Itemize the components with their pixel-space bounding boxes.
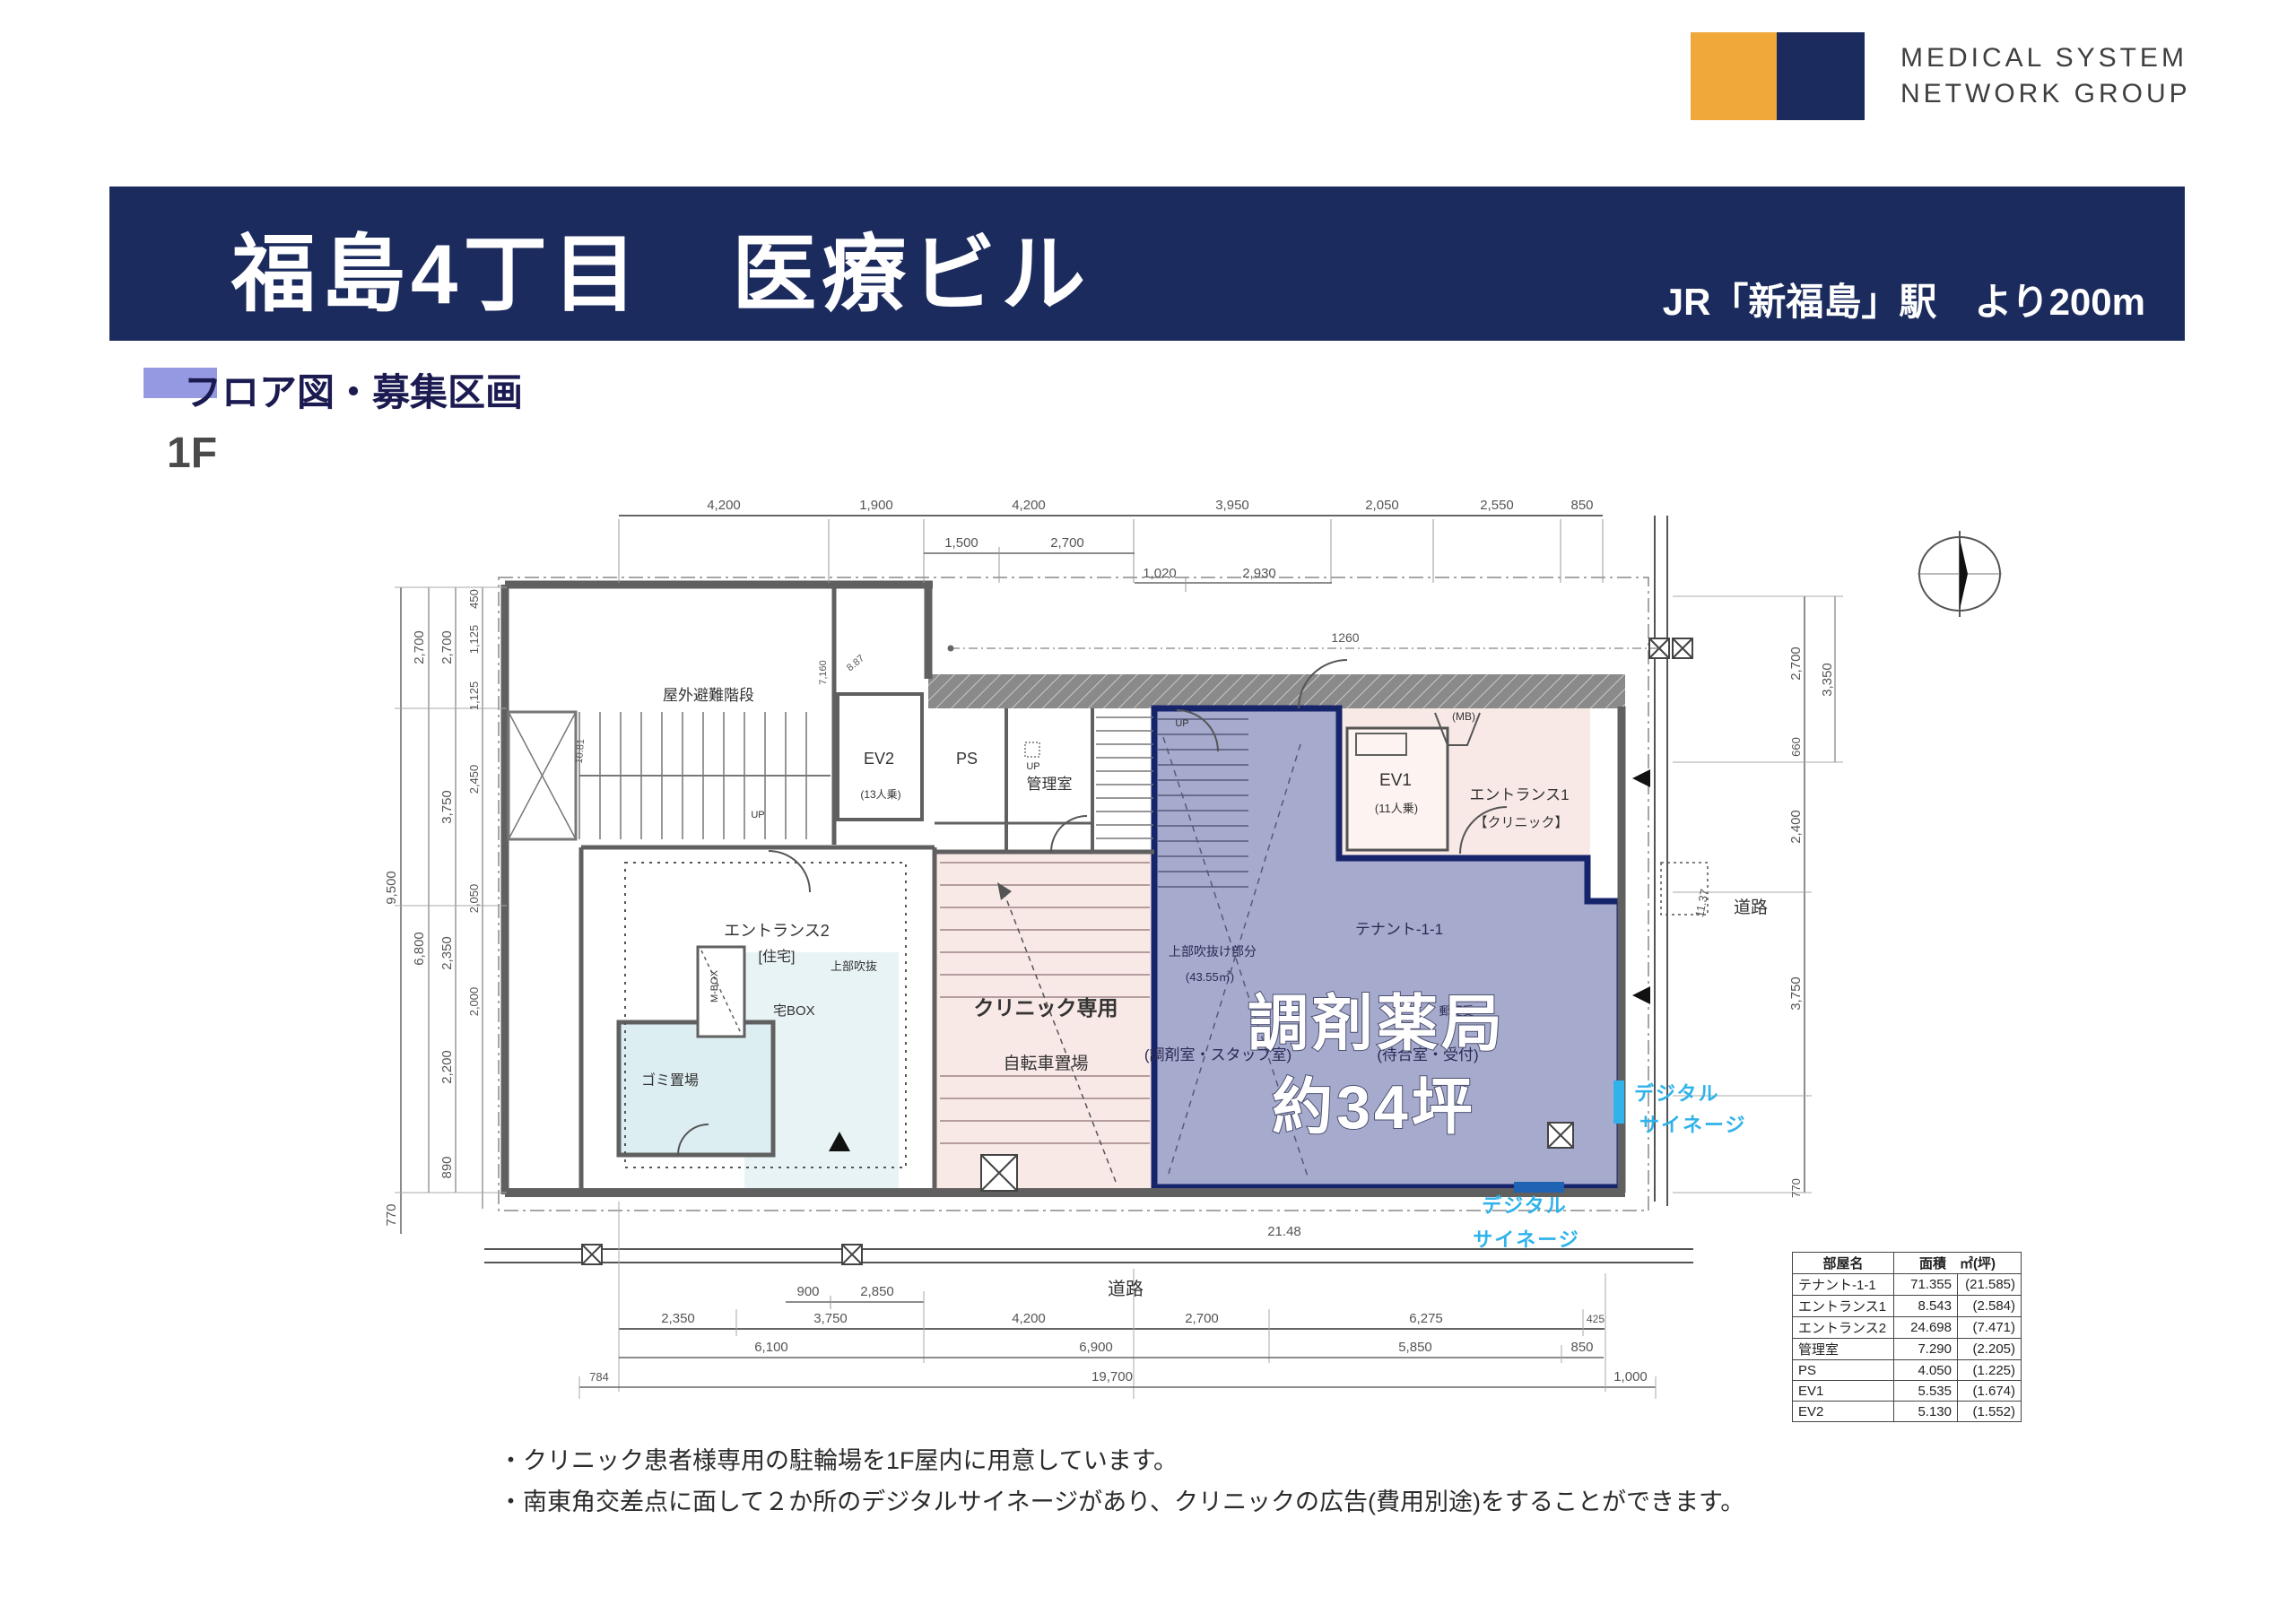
dim-left: 1,125 <box>467 681 481 711</box>
label-tenant-id: テナント-1-1 <box>1355 921 1443 938</box>
label-escape-stairs: 屋外避難階段 <box>663 687 754 704</box>
room-name: エントランス2 <box>1793 1317 1894 1339</box>
label-entrance1-type: 【クリニック】 <box>1474 815 1568 830</box>
escape-stairs <box>509 712 831 839</box>
dim-1081: 10.81 <box>574 739 587 764</box>
table-row: テナント-1-1 71.355 (21.585) <box>1793 1274 2022 1296</box>
label-admin-room: 管理室 <box>1027 776 1073 793</box>
dim-top3: 2,930 <box>1242 566 1276 581</box>
label-entrance1: エントランス1 <box>1469 786 1569 803</box>
room-name: 管理室 <box>1793 1339 1894 1360</box>
north-compass-icon <box>1918 531 2002 617</box>
dim-top2: 2,700 <box>1050 535 1084 551</box>
label-up: UP <box>751 810 764 820</box>
label-parcel-box: 宅BOX <box>773 1003 815 1019</box>
label-road-bottom: 道路 <box>1108 1279 1144 1299</box>
dim-top: 2,050 <box>1365 498 1399 513</box>
label-bicycle: 自転車置場 <box>1003 1054 1088 1073</box>
dim-left: 2,000 <box>467 987 481 1017</box>
dim-bottom3: 850 <box>1570 1340 1593 1355</box>
dim-bottom3: 6,900 <box>1079 1340 1113 1355</box>
dim-top3: 1,020 <box>1143 566 1177 581</box>
room-area: 5.535 <box>1894 1381 1958 1402</box>
label-entrance2-type: [住宅] <box>759 949 796 965</box>
signage-bottom-line1: デジタル <box>1482 1194 1568 1217</box>
label-entrance2: エントランス2 <box>724 922 830 940</box>
signage-bottom-line2: サイネージ <box>1473 1228 1580 1251</box>
dim-left: 450 <box>467 589 481 609</box>
dim-left: 2,700 <box>439 630 455 664</box>
label-void-note: 上部吹抜 <box>831 959 877 973</box>
dim-left: 9,500 <box>384 871 399 905</box>
dim-bottom1: 900 <box>796 1284 819 1299</box>
dim-left: 1,125 <box>467 625 481 655</box>
room-tsubo: (1.552) <box>1958 1402 2022 1422</box>
dim-top: 1,900 <box>859 498 893 513</box>
dim-887: 8.87 <box>845 653 866 673</box>
room-tsubo: (1.225) <box>1958 1360 2022 1381</box>
dim-top: 2,550 <box>1480 498 1514 513</box>
room-tsubo: (1.674) <box>1958 1381 2022 1402</box>
dim-bottom2: 3,750 <box>813 1311 848 1326</box>
label-road-right: 道路 <box>1734 898 1768 917</box>
dim-top: 4,200 <box>1012 498 1046 513</box>
dim-left: 770 <box>384 1203 399 1226</box>
dim-bottom2: 6,275 <box>1409 1311 1443 1326</box>
dim-bottom4: 784 <box>589 1370 609 1384</box>
admin-stairs <box>1096 717 1153 838</box>
dim-bottom4: 19,700 <box>1091 1369 1133 1384</box>
table-row: PS 4.050 (1.225) <box>1793 1360 2022 1381</box>
pharmacy-title: 調剤薬局 <box>1248 990 1506 1058</box>
label-ev2-capacity: (13人乗) <box>860 788 900 801</box>
table-row: 管理室 7.290 (2.205) <box>1793 1339 2022 1360</box>
room-name: EV2 <box>1793 1402 1894 1422</box>
room-name: エントランス1 <box>1793 1296 1894 1317</box>
dim-bottom3: 6,100 <box>754 1340 788 1355</box>
entry-arrow-icons <box>1632 769 1650 1004</box>
dim-7160: 7,160 <box>818 660 829 685</box>
footnote-bicycle: ・クリニック患者様専用の駐輪場を1F屋内に用意しています。 <box>499 1440 1744 1481</box>
dim-right: 3,750 <box>1788 976 1804 1011</box>
label-ev1-capacity: (11人乗) <box>1375 802 1418 815</box>
dim-bottom3: 5,850 <box>1398 1340 1432 1355</box>
signage-right-line1: デジタル <box>1634 1082 1720 1105</box>
label-upper-void-area: (43.55㎡) <box>1186 970 1234 984</box>
dim-right: 2,400 <box>1788 810 1804 844</box>
area-table: 部屋名 面積 ㎡(坪) テナント-1-1 71.355 (21.585) エント… <box>1792 1252 2022 1422</box>
dim-top: 4,200 <box>707 498 741 513</box>
dim-left: 2,700 <box>412 630 427 664</box>
dim-left: 6,800 <box>412 932 427 966</box>
dim-right: 3,350 <box>1820 663 1835 697</box>
room-tsubo: (21.585) <box>1958 1274 2022 1296</box>
dim-left: 2,350 <box>439 936 455 970</box>
dim-top: 3,950 <box>1215 498 1249 513</box>
room-tsubo: (7.471) <box>1958 1317 2022 1339</box>
label-mb: (MB) <box>1452 710 1475 723</box>
signage-right-line2: サイネージ <box>1639 1114 1747 1136</box>
table-row: エントランス2 24.698 (7.471) <box>1793 1317 2022 1339</box>
col-header-area: 面積 ㎡(坪) <box>1894 1253 2022 1274</box>
dim-bottom1: 2,850 <box>860 1284 894 1299</box>
dim-top2: 1,500 <box>944 535 978 551</box>
room-area: 71.355 <box>1894 1274 1958 1296</box>
label-upper-void: 上部吹抜け部分 <box>1169 944 1257 959</box>
dim-diag: 1260 <box>1331 630 1359 645</box>
label-mbox: M-BOX <box>709 969 720 1002</box>
dim-bottom2: 4,200 <box>1012 1311 1046 1326</box>
dim-right: 2,700 <box>1788 647 1804 681</box>
label-up: UP <box>1026 761 1039 772</box>
room-name: テナント-1-1 <box>1793 1274 1894 1296</box>
dim-left: 3,750 <box>439 790 455 824</box>
dim-bottom2: 425 <box>1587 1313 1605 1325</box>
label-up: UP <box>1175 718 1188 729</box>
dim-bottom2: 2,700 <box>1185 1311 1219 1326</box>
room-name: EV1 <box>1793 1381 1894 1402</box>
dim-left: 2,450 <box>467 765 481 794</box>
room-tsubo: (2.584) <box>1958 1296 2022 1317</box>
label-garbage: ゴミ置場 <box>641 1072 699 1089</box>
dim-left: 2,050 <box>467 884 481 914</box>
dim-bottom2: 2,350 <box>661 1311 695 1326</box>
room-area: 7.290 <box>1894 1339 1958 1360</box>
table-row: エントランス1 8.543 (2.584) <box>1793 1296 2022 1317</box>
room-area: 4.050 <box>1894 1360 1958 1381</box>
label-ps: PS <box>956 750 978 768</box>
table-row: EV2 5.130 (1.552) <box>1793 1402 2022 1422</box>
room-area: 24.698 <box>1894 1317 1958 1339</box>
label-ev2: EV2 <box>864 750 894 768</box>
pharmacy-size: 約34坪 <box>1272 1073 1476 1141</box>
dim-right: 770 <box>1789 1178 1803 1198</box>
dim-top: 850 <box>1570 498 1593 513</box>
room-area: 5.130 <box>1894 1402 1958 1422</box>
room-area: 8.543 <box>1894 1296 1958 1317</box>
dim-bottom4: 1,000 <box>1613 1369 1648 1384</box>
label-ev1: EV1 <box>1379 771 1412 790</box>
footnotes: ・クリニック患者様専用の駐輪場を1F屋内に用意しています。 ・南東角交差点に面し… <box>499 1440 1744 1523</box>
room-tsubo: (2.205) <box>1958 1339 2022 1360</box>
dim-left: 890 <box>439 1156 455 1178</box>
dim-left: 2,200 <box>439 1050 455 1084</box>
col-header-room: 部屋名 <box>1793 1253 1894 1274</box>
table-row: EV1 5.535 (1.674) <box>1793 1381 2022 1402</box>
footnote-signage: ・南東角交差点に面して２か所のデジタルサイネージがあり、クリニックの広告(費用別… <box>499 1481 1744 1523</box>
dim-2148: 21.48 <box>1267 1224 1301 1239</box>
label-clinic-only: クリニック専用 <box>974 996 1118 1020</box>
room-name: PS <box>1793 1360 1894 1381</box>
dim-right: 660 <box>1789 737 1803 757</box>
